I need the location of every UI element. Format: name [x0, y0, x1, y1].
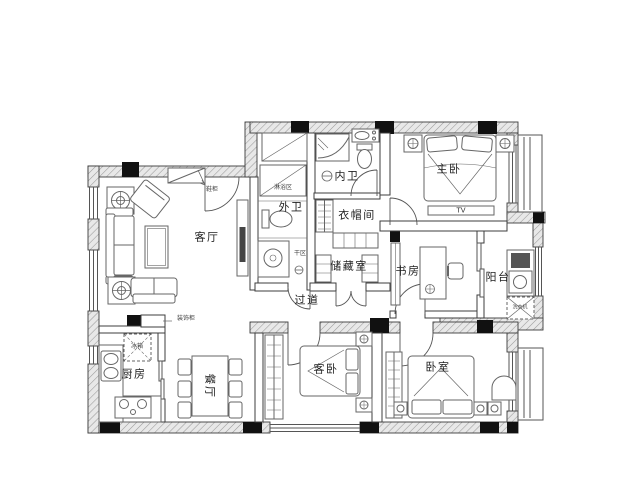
sofa — [106, 208, 134, 284]
master-nightstand-left — [404, 135, 422, 152]
bedroom-furniture — [386, 352, 516, 418]
shoe-cabinet — [168, 168, 205, 185]
room-label-bedroom: 卧室 — [426, 362, 451, 373]
annotation-shower-area: 淋浴区 — [274, 185, 292, 191]
armchair — [129, 179, 170, 219]
room-label-living: 客厅 — [195, 232, 220, 243]
bedroom-stool — [488, 402, 501, 415]
cloakroom-closet — [316, 200, 333, 232]
annotation-fridge: 冰箱 — [131, 344, 143, 350]
annotation-washer: 洗衣机 — [512, 306, 527, 311]
room-label-master: 主卧 — [437, 164, 462, 175]
coffee-table — [145, 226, 168, 268]
bedroom-nightstand-right — [474, 402, 487, 415]
room-label-balcony: 阳台 — [486, 272, 511, 283]
desk-chair — [448, 263, 463, 279]
guest-nightstand-bottom — [356, 398, 372, 412]
room-label-kitchen: 厨房 — [122, 369, 147, 380]
annotation-dry-area: 干区 — [294, 251, 306, 257]
dry-area-sink — [258, 241, 289, 277]
room-label-storage: 储藏室 — [330, 261, 368, 272]
guest-wardrobe — [265, 335, 283, 419]
kitchen-sink — [101, 351, 121, 381]
floor-plan: 客厅 厨房 餐厅 过道 内卫 外卫 衣帽间 储藏室 书房 阳台 主卧 客卧 卧室… — [0, 0, 627, 500]
room-label-outer-bath: 外卫 — [279, 202, 304, 213]
room-label-guest: 客卧 — [314, 364, 339, 375]
tv-cabinet-living — [237, 200, 248, 276]
storage-shelves — [316, 233, 378, 282]
room-label-inner-bath: 内卫 — [335, 171, 360, 182]
loveseat — [131, 278, 177, 303]
inner-sink — [352, 129, 379, 142]
living-furniture — [106, 168, 248, 304]
guest-nightstand-top — [356, 332, 372, 346]
toilet-inner — [357, 144, 372, 169]
annotation-tv: TV — [456, 208, 465, 215]
room-label-hallway: 过道 — [295, 295, 320, 306]
bedroom-chair — [492, 376, 516, 400]
guest-furniture — [265, 332, 372, 419]
desk — [420, 247, 446, 299]
room-label-cloakroom: 衣帽间 — [338, 210, 376, 221]
annotation-shoe-cabinet: 鞋柜 — [206, 187, 218, 193]
room-label-dining: 餐厅 — [205, 374, 216, 399]
bedroom-nightstand-left — [394, 402, 407, 415]
master-nightstand-right — [496, 135, 514, 152]
annotation-decor-cabinet: 装饰柜 — [177, 316, 195, 322]
corner-shower — [316, 134, 349, 161]
floor-plan-drawing — [0, 0, 627, 500]
room-label-study: 书房 — [396, 266, 421, 277]
stove — [115, 397, 151, 418]
